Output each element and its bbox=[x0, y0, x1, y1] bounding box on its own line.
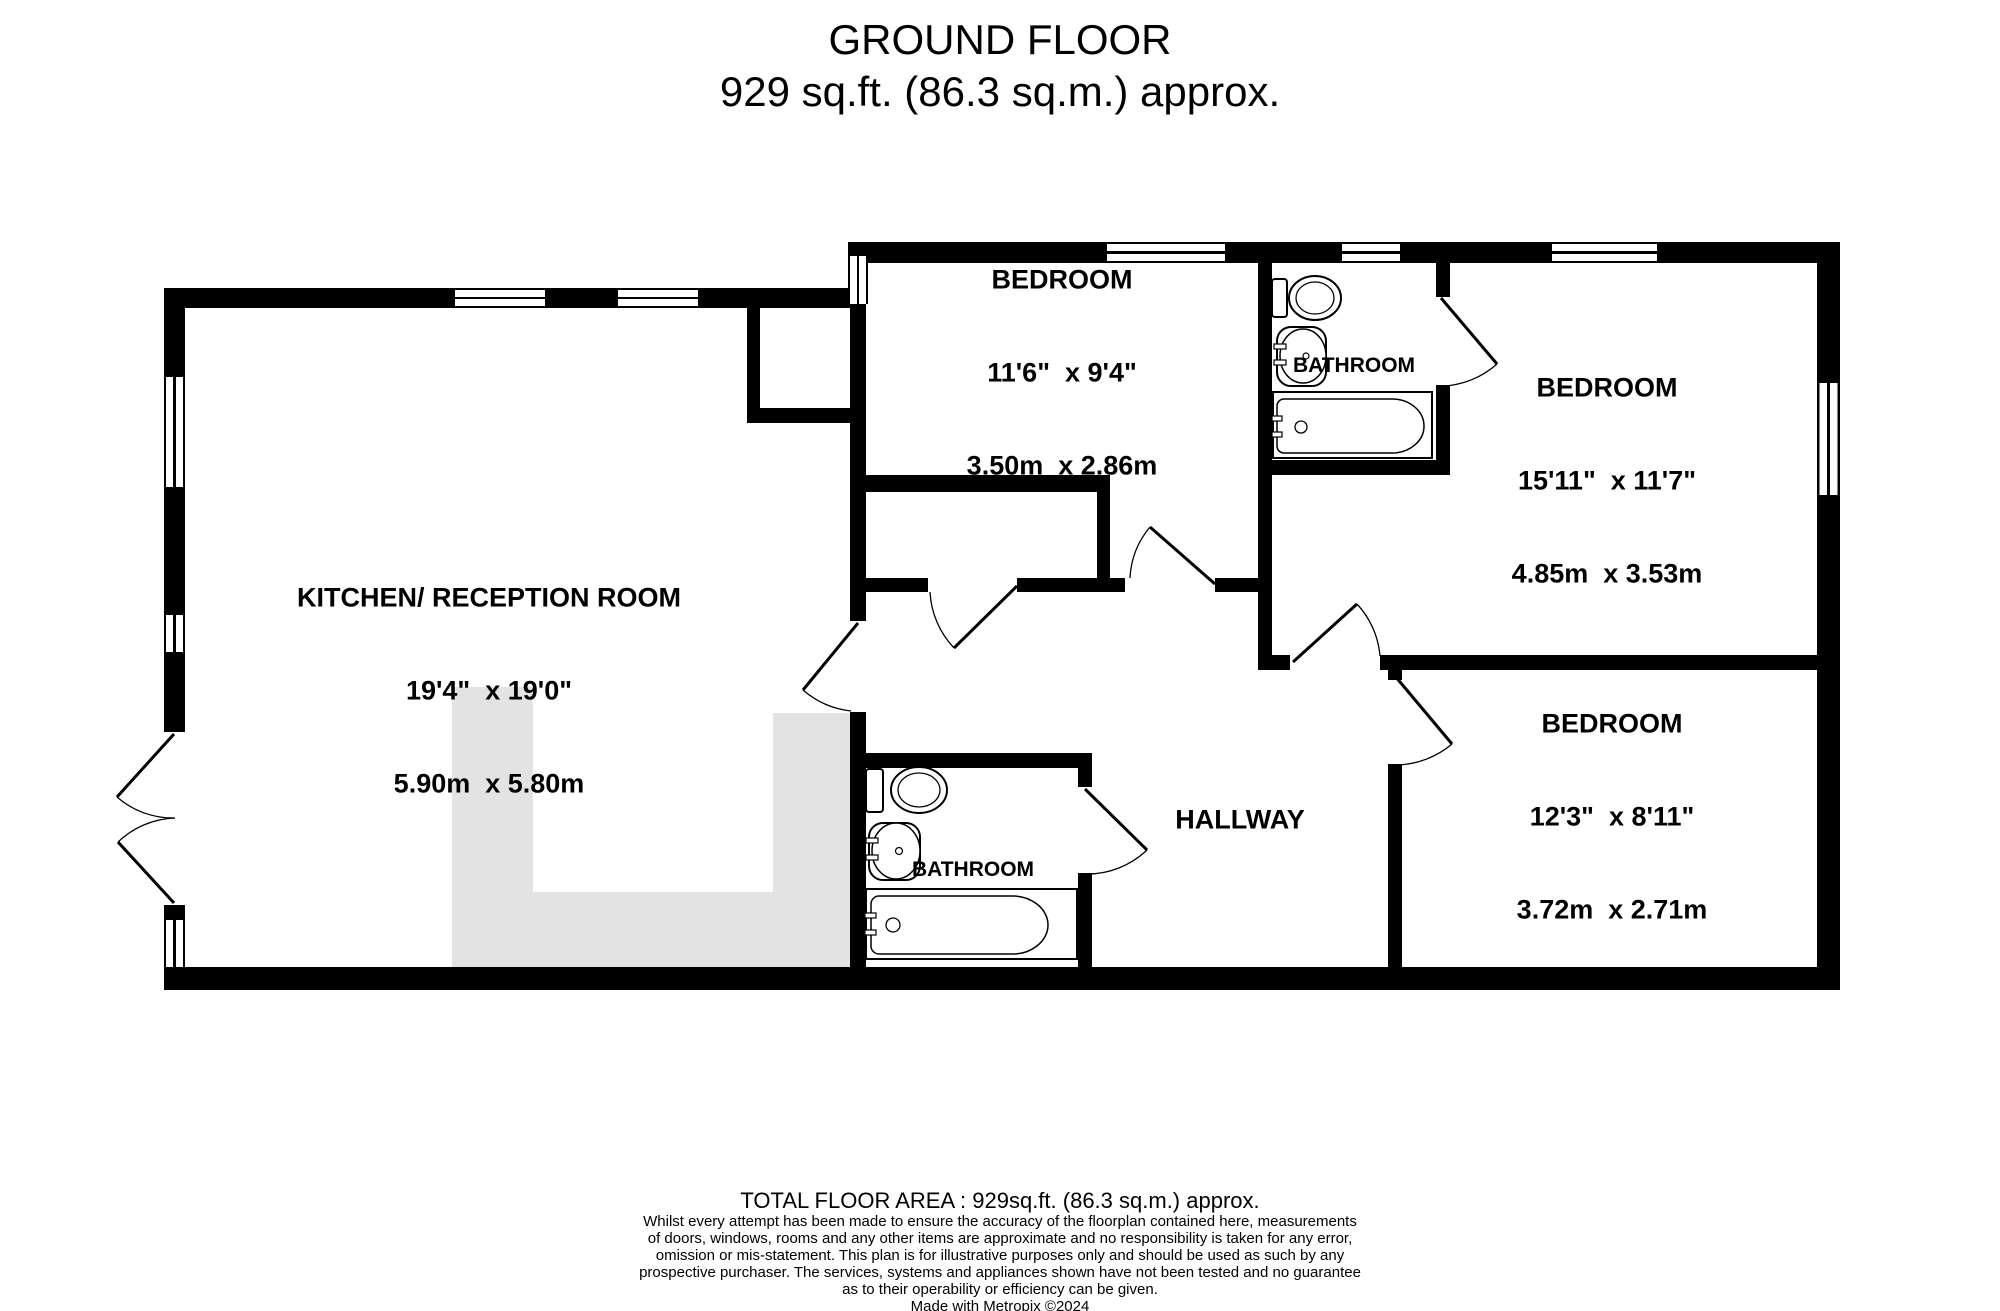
room-name: KITCHEN/ RECEPTION ROOM bbox=[297, 583, 681, 614]
plan-title-floor: GROUND FLOOR bbox=[0, 14, 2000, 66]
bedroom3-door-arc bbox=[1397, 744, 1452, 765]
wall-cupboard-front-left bbox=[850, 578, 928, 592]
window-bed2-top bbox=[1552, 242, 1657, 263]
toilet-cistern-icon bbox=[1272, 279, 1287, 317]
wall-closet-left bbox=[747, 308, 760, 423]
window-bed2-right bbox=[1817, 383, 1840, 495]
bathtub-drain-icon bbox=[886, 918, 900, 932]
room-dim-imperial: 12'3" x 8'11" bbox=[1517, 802, 1708, 833]
wall-bathtop-bottom bbox=[1270, 460, 1450, 475]
cupboard-door-leaf bbox=[954, 586, 1017, 648]
label-bathroom-top: BATHROOM bbox=[1293, 311, 1415, 421]
disclaimer-line: Whilst every attempt has been made to en… bbox=[0, 1213, 2000, 1230]
room-name: HALLWAY bbox=[1175, 805, 1305, 836]
window-kitchen-left-1 bbox=[164, 377, 185, 487]
bedroom2-door-arc bbox=[1357, 604, 1380, 656]
wall-bed3-left bbox=[1388, 764, 1402, 967]
plan-title-area: 929 sq.ft. (86.3 sq.m.) approx. bbox=[0, 66, 2000, 118]
window-kitchen-top-1 bbox=[455, 288, 545, 308]
toilet-cistern-icon bbox=[866, 769, 883, 812]
window-step bbox=[848, 256, 868, 304]
wall-kitchen-divider-lower bbox=[850, 712, 866, 967]
bathroom-bottom-door-leaf bbox=[1085, 789, 1147, 850]
wall-bathbot-top bbox=[850, 753, 1092, 768]
disclaimer-line: omission or mis-statement. This plan is … bbox=[0, 1247, 2000, 1264]
room-dim-metric: 4.85m x 3.53m bbox=[1512, 559, 1703, 590]
room-name: BEDROOM bbox=[967, 265, 1158, 296]
floor-plan-page: GROUND FLOOR 929 sq.ft. (86.3 sq.m.) app… bbox=[0, 0, 2000, 1311]
room-dim-metric: 3.72m x 2.71m bbox=[1517, 895, 1708, 926]
window-kitchen-left-2 bbox=[164, 615, 185, 652]
label-bedroom1: BEDROOM 11'6" x 9'4" 3.50m x 2.86m bbox=[967, 203, 1158, 544]
french-door-leaf-top bbox=[117, 734, 174, 797]
wall-bathbot-right-upper bbox=[1078, 753, 1092, 787]
room-name: BEDROOM bbox=[1517, 709, 1708, 740]
bathtub-drain-icon bbox=[1295, 421, 1307, 433]
wall-bed3-left-stub bbox=[1388, 670, 1402, 680]
label-hallway: HALLWAY bbox=[1175, 743, 1305, 898]
wall-bathbot-right-lower bbox=[1078, 873, 1092, 967]
bedroom3-door-leaf bbox=[1395, 676, 1452, 744]
sink-tap-icon bbox=[1274, 360, 1286, 365]
window-kitchen-top-2 bbox=[618, 288, 698, 308]
label-bathroom-bottom: BATHROOM bbox=[912, 815, 1034, 925]
wall-cupboard-front-right bbox=[1017, 578, 1125, 592]
kitchen-door-leaf bbox=[803, 623, 858, 690]
french-door-arc-top bbox=[117, 797, 175, 818]
disclaimer: Whilst every attempt has been made to en… bbox=[0, 1213, 2000, 1311]
label-kitchen: KITCHEN/ RECEPTION ROOM 19'4" x 19'0" 5.… bbox=[297, 521, 681, 862]
wall-bathtop-right-lower bbox=[1436, 385, 1450, 475]
room-dim-metric: 3.50m x 2.86m bbox=[967, 451, 1158, 482]
disclaimer-line: prospective purchaser. The services, sys… bbox=[0, 1264, 2000, 1281]
toilet-seat-icon bbox=[1296, 282, 1334, 314]
bathtub-tap-icon bbox=[865, 913, 876, 918]
sink-tap-icon bbox=[866, 855, 878, 860]
french-door-leaf-bottom bbox=[118, 842, 174, 903]
kitchen-door-arc bbox=[803, 690, 851, 711]
bedroom1-door-leaf bbox=[1150, 527, 1215, 584]
bathroom-top-door-arc bbox=[1444, 364, 1497, 386]
plan-title: GROUND FLOOR 929 sq.ft. (86.3 sq.m.) app… bbox=[0, 14, 2000, 118]
wall-bed2-bottom-stub bbox=[1258, 655, 1290, 670]
toilet-bowl-icon bbox=[891, 767, 947, 813]
bathtub-tap-icon bbox=[1272, 432, 1282, 437]
cupboard-door-arc bbox=[930, 592, 954, 648]
bathroom-top-door-leaf bbox=[1441, 298, 1497, 364]
room-dim-imperial: 19'4" x 19'0" bbox=[297, 676, 681, 707]
room-name: BEDROOM bbox=[1512, 373, 1703, 404]
sink-tap-icon bbox=[1274, 344, 1286, 349]
label-bedroom3: BEDROOM 12'3" x 8'11" 3.72m x 2.71m bbox=[1517, 647, 1708, 988]
made-with-credit: Made with Metropix ©2024 bbox=[0, 1298, 2000, 1311]
bathtub-tap-icon bbox=[1272, 416, 1282, 421]
wall-bathtop-right-upper bbox=[1436, 263, 1450, 297]
bathtub-tap-icon bbox=[865, 930, 876, 935]
bedroom2-door-leaf bbox=[1293, 604, 1357, 662]
kitchen-counter-right bbox=[773, 713, 852, 967]
room-name: BATHROOM bbox=[1293, 355, 1415, 377]
bathroom-bottom-door-arc bbox=[1086, 850, 1147, 874]
window-kitchen-left-3 bbox=[164, 920, 185, 967]
sink-drain-icon bbox=[896, 848, 903, 855]
wall-closet-bottom bbox=[747, 408, 865, 423]
room-dim-metric: 5.90m x 5.80m bbox=[297, 769, 681, 800]
total-floor-area: TOTAL FLOOR AREA : 929sq.ft. (86.3 sq.m.… bbox=[0, 1188, 2000, 1214]
label-bedroom2: BEDROOM 15'11" x 11'7" 4.85m x 3.53m bbox=[1512, 311, 1703, 652]
wall-right bbox=[1817, 242, 1840, 990]
room-dim-imperial: 11'6" x 9'4" bbox=[967, 358, 1158, 389]
disclaimer-line: of doors, windows, rooms and any other i… bbox=[0, 1230, 2000, 1247]
disclaimer-line: as to their operability or efficiency ca… bbox=[0, 1281, 2000, 1298]
wall-left bbox=[164, 288, 185, 732]
window-bathtop-top bbox=[1342, 242, 1400, 263]
room-name: BATHROOM bbox=[912, 859, 1034, 881]
room-dim-imperial: 15'11" x 11'7" bbox=[1512, 466, 1703, 497]
french-door-arc-bottom bbox=[118, 818, 175, 842]
sink-tap-icon bbox=[866, 838, 878, 843]
toilet-seat-icon bbox=[898, 773, 940, 807]
